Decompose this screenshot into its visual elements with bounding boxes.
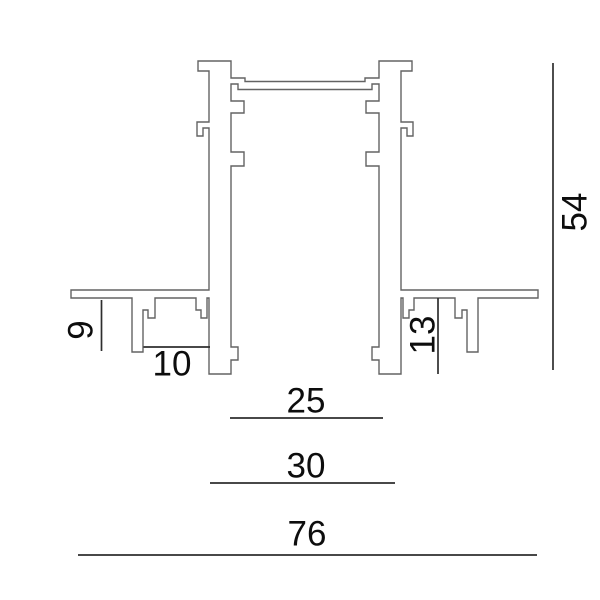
profile-outline (71, 61, 538, 374)
dim-label-25: 25 (287, 382, 326, 421)
drawing-canvas: 9 10 13 54 25 30 76 (0, 0, 600, 600)
dim-label-54: 54 (556, 193, 595, 232)
dim-label-30: 30 (287, 447, 326, 486)
dim-label-13: 13 (404, 316, 443, 355)
dim-label-9: 9 (62, 320, 101, 339)
dim-label-10: 10 (153, 345, 192, 384)
dim-label-76: 76 (288, 515, 327, 554)
profile-drawing: 9 10 13 54 25 30 76 (0, 0, 600, 600)
